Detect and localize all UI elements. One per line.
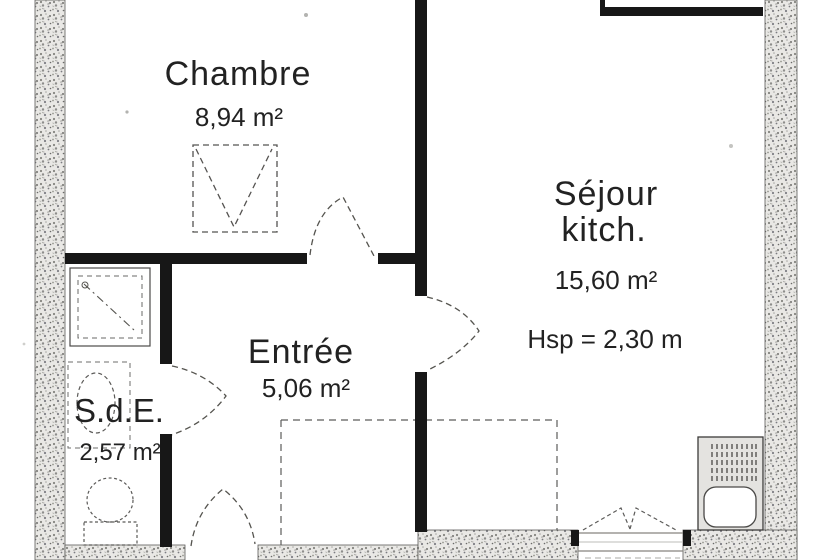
wardrobe-symbol bbox=[193, 145, 277, 232]
wall-main-vertical-upper bbox=[415, 0, 427, 296]
casement-window-symbol bbox=[578, 508, 683, 558]
floor-plan-drawing: Chambre 8,94 m² Séjour kitch. 15,60 m² H… bbox=[0, 0, 840, 560]
wall-main-vertical-lower bbox=[415, 372, 427, 532]
entrance-door-swing bbox=[191, 489, 255, 546]
wall-top-return bbox=[600, 0, 605, 9]
room-label-chambre: Chambre bbox=[165, 55, 312, 93]
wall-bottom-sejour-right bbox=[683, 530, 797, 560]
wall-bottom-sejour-left bbox=[418, 530, 578, 560]
sde-door-swing bbox=[171, 366, 226, 435]
wall-sde-upper bbox=[160, 262, 172, 364]
window-jamb-left bbox=[571, 530, 579, 546]
wall-sde-lower bbox=[160, 434, 172, 547]
room-area-chambre: 8,94 m² bbox=[195, 102, 283, 132]
room-label-sde: S.d.E. bbox=[74, 392, 164, 429]
wall-left bbox=[35, 0, 65, 560]
room-label-entree: Entrée bbox=[248, 333, 354, 371]
room-label-sejour-line2: kitch. bbox=[561, 211, 646, 249]
wall-bottom-entree bbox=[258, 545, 418, 560]
window-jamb-right bbox=[683, 530, 691, 546]
chambre-door-swing bbox=[310, 197, 374, 256]
floor-plan: Chambre 8,94 m² Séjour kitch. 15,60 m² H… bbox=[0, 0, 840, 560]
room-area-entree: 5,06 m² bbox=[262, 373, 350, 403]
wall-top-sejour bbox=[600, 7, 763, 16]
kitchen-sink-unit-symbol bbox=[698, 437, 763, 530]
room-label-sejour-line1: Séjour bbox=[554, 175, 658, 213]
door-swings bbox=[171, 197, 479, 546]
shower-tray-symbol bbox=[70, 268, 150, 346]
room-area-sejour: 15,60 m² bbox=[555, 265, 658, 295]
toilet-symbol bbox=[84, 478, 137, 545]
sejour-door-swing bbox=[427, 297, 479, 370]
wall-chambre-left bbox=[65, 253, 307, 264]
room-area-sde: 2,57 m² bbox=[79, 439, 160, 466]
sink-bowl bbox=[704, 487, 756, 527]
wall-chambre-right bbox=[378, 253, 416, 264]
ceiling-height-note: Hsp = 2,30 m bbox=[527, 324, 682, 354]
wall-right bbox=[765, 0, 797, 560]
wall-bottom-sde bbox=[65, 545, 185, 560]
